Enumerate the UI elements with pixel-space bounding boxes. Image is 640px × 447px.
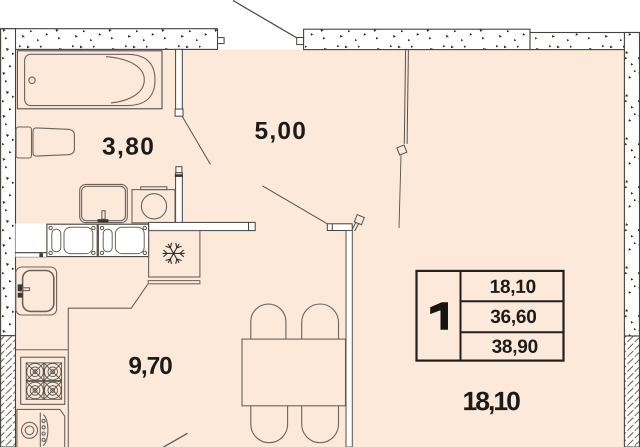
svg-text:36,60: 36,60 — [490, 307, 536, 328]
svg-text:3,80: 3,80 — [102, 133, 155, 160]
svg-text:9,70: 9,70 — [128, 353, 172, 380]
svg-text:5,00: 5,00 — [255, 118, 308, 145]
svg-text:18,10: 18,10 — [490, 277, 536, 298]
svg-text:38,90: 38,90 — [492, 337, 538, 358]
svg-text:18,10: 18,10 — [463, 386, 521, 416]
